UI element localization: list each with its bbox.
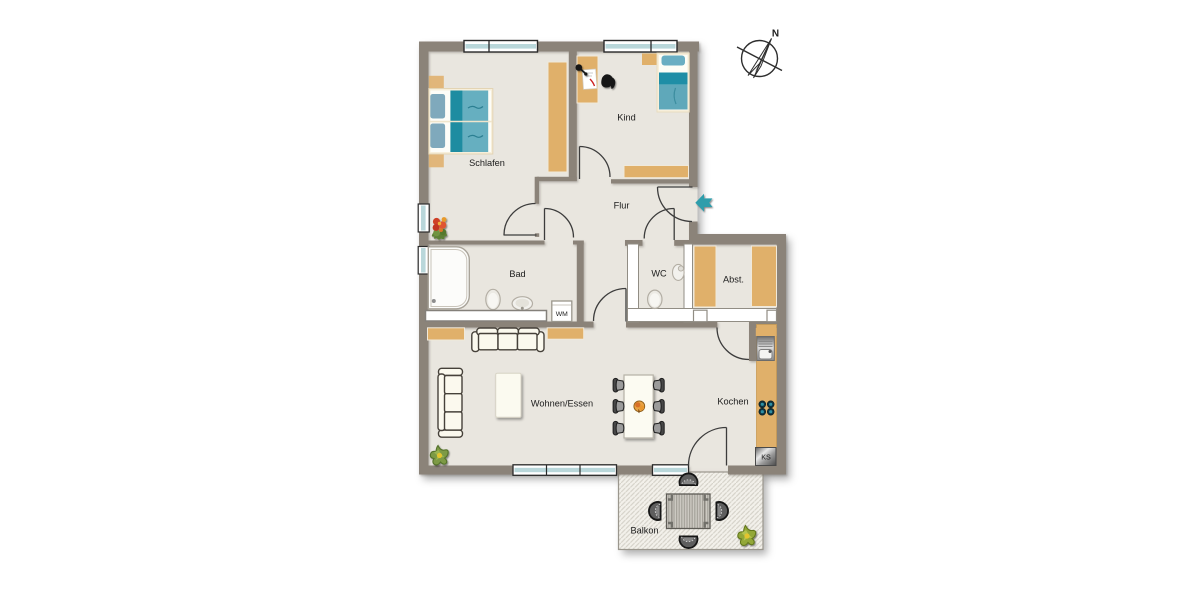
svg-text:Kochen: Kochen bbox=[717, 397, 748, 407]
svg-text:Flur: Flur bbox=[614, 201, 630, 211]
svg-text:WM: WM bbox=[556, 311, 568, 318]
svg-text:Abst.: Abst. bbox=[723, 275, 744, 285]
svg-text:Bad: Bad bbox=[509, 269, 525, 279]
svg-text:KS: KS bbox=[761, 453, 771, 462]
svg-text:N: N bbox=[772, 29, 779, 40]
svg-text:Kind: Kind bbox=[617, 113, 635, 123]
svg-text:Schlafen: Schlafen bbox=[469, 158, 505, 168]
svg-text:Wohnen/Essen: Wohnen/Essen bbox=[531, 399, 593, 409]
svg-text:WC: WC bbox=[651, 269, 667, 279]
svg-text:Balkon: Balkon bbox=[630, 526, 658, 536]
